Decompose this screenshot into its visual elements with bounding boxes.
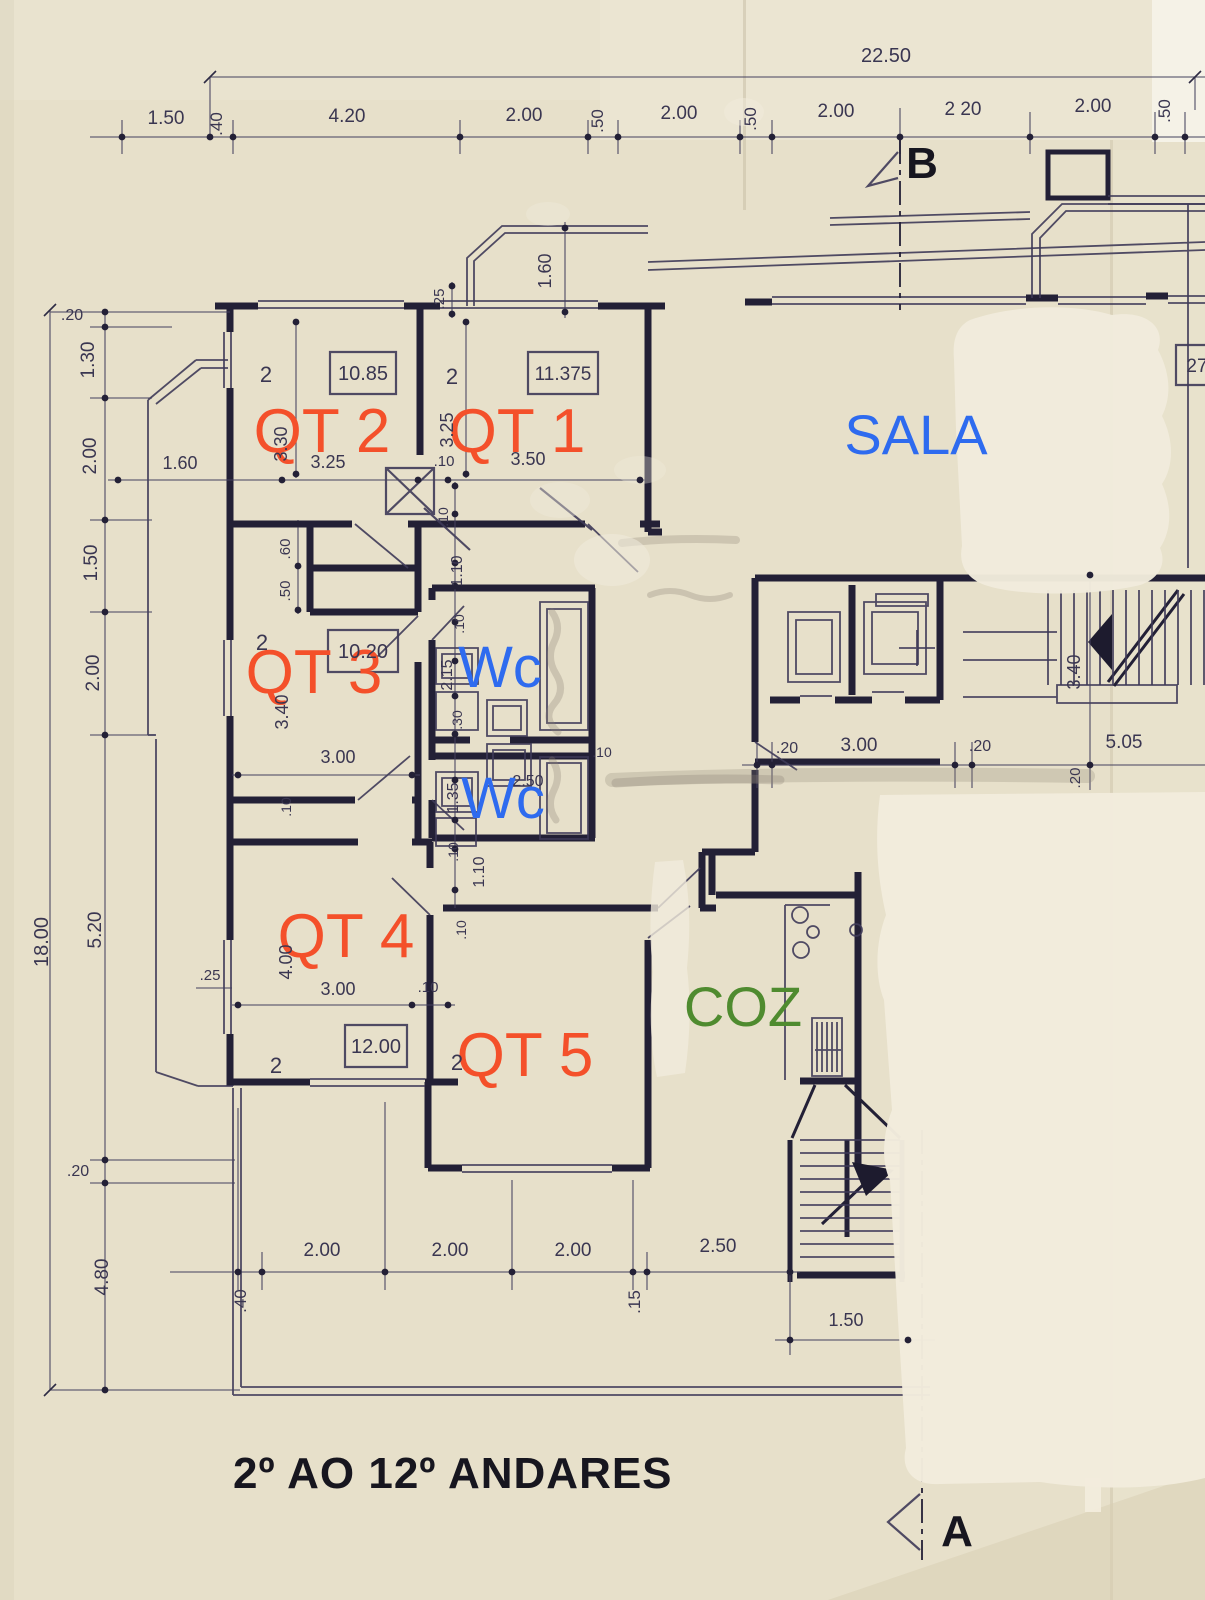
dimension-dot [452,887,459,894]
dimension-label: .50 [588,109,607,133]
dimension-dot [637,477,644,484]
dimension-label: .10 [435,507,451,527]
dimension-label: 1.35 [445,782,462,813]
dimension-dot [452,777,459,784]
dimension-dot [409,772,416,779]
area-value-qt1: 11.375 [535,364,592,385]
dimension-label: 1.10 [449,555,466,586]
dimension-dot [102,309,109,316]
dimension-label: .50 [741,107,760,131]
dimension-dot [102,732,109,739]
dimension-dot [463,319,470,326]
dimension-label: .15 [625,1290,644,1314]
dimension-dot [119,134,126,141]
dimension-dot [463,471,470,478]
dimension-label: 2.00 [555,1240,592,1261]
dimension-dot [1027,134,1034,141]
dimension-label: .40 [207,112,226,136]
room-label-sala: SALA [844,403,988,466]
dimension-dot [1182,134,1189,141]
dimension-label: 2.00 [432,1240,469,1261]
dimension-label: 1.60 [535,253,555,288]
dimension-dot [102,395,109,402]
dimension-dot [445,477,452,484]
dimension-label: 2.50 [700,1236,737,1257]
dimension-label: .50 [1155,99,1174,123]
dimension-label: 3.30 [271,426,291,461]
dimension-label: 3.00 [320,747,355,767]
dimension-label: .25 [431,289,448,310]
dimension-dot [562,309,569,316]
dimension-dot [295,607,302,614]
dimension-dot [102,1157,109,1164]
dimension-label: 1.30 [78,342,99,379]
dimension-label: .10 [434,453,455,470]
dimension-dot [409,1002,416,1009]
dimension-dot [769,134,776,141]
dimension-label: 1.50 [81,545,102,582]
dimension-dot [102,609,109,616]
dimension-label: .20 [61,307,83,324]
dimension-dot [952,762,959,769]
dimension-label: 18.00 [31,917,53,967]
dimension-label: .25 [200,967,221,984]
dimension-dot [754,762,761,769]
dimension-dot [969,762,976,769]
dimension-dot [115,477,122,484]
dimension-label: 2.00 [506,105,543,126]
room-number: 2 [451,1050,463,1075]
dimension-label: 3.00 [841,735,878,756]
dimension-label: 2.00 [83,655,104,692]
dimension-dot [562,225,569,232]
dimension-label: .10 [451,614,467,634]
dimension-dot [585,134,592,141]
dimension-dot [897,134,904,141]
area-value-partial: 27 [1186,356,1205,377]
floor-range-label: 2º AO 12º ANDARES [233,1449,673,1498]
dimension-dot [235,772,242,779]
dimension-dot [1152,134,1159,141]
dimension-dot [769,762,776,769]
dimension-dot [445,1002,452,1009]
section-marker-a: A [941,1507,973,1556]
room-label-qt4: QT 4 [278,902,415,971]
dimension-label: 3.25 [310,452,345,472]
dimension-label: 4.00 [276,944,296,979]
dimension-dot [615,134,622,141]
dimension-dot [102,1180,109,1187]
dimension-dot [295,563,302,570]
dimension-label: .10 [418,979,439,996]
dimension-dot [509,1269,516,1276]
dimension-label: 3.50 [510,449,545,469]
dimension-label: 5.05 [1106,732,1143,753]
dimension-dot [102,517,109,524]
dimension-dot [452,511,459,518]
dimension-dot [235,1269,242,1276]
dimension-label: 2.00 [80,438,101,475]
dimension-label: 22.50 [861,45,911,67]
dimension-label: 4.80 [92,1259,113,1296]
dimension-label: 3.25 [437,412,457,447]
dimension-label: 1.10 [471,856,488,887]
dimension-dot [1087,572,1094,579]
area-value-qt4: 12.00 [351,1036,401,1058]
room-number: 2 [260,362,272,387]
dimension-label: .20 [969,738,991,755]
dimension-label: 2.00 [818,101,855,122]
dimension-dot [235,1002,242,1009]
dimension-dot [259,1269,266,1276]
dimension-dot [452,817,459,824]
dimension-dot [293,471,300,478]
blueprint-photo: QT 2QT 1SALAQT 3WcWcQT 4QT 5COZ2º AO 12º… [0,0,1205,1600]
section-marker-b: B [906,139,938,188]
dimension-dot [905,1337,912,1344]
dimension-label: 3.40 [1064,654,1084,689]
room-number: 2 [270,1053,282,1078]
dimension-label: 3.00 [320,979,355,999]
area-value-qt2: 10.85 [338,363,388,385]
dimension-label: 2.00 [661,103,698,124]
dimension-label: 1.50 [828,1310,863,1330]
dimension-label: 1.50 [148,108,185,129]
floorplan-drawing: QT 2QT 1SALAQT 3WcWcQT 4QT 5COZ2º AO 12º… [0,0,1205,1600]
dimension-dot [279,477,286,484]
dimension-dot [449,283,456,290]
dimension-dot [102,1387,109,1394]
dimension-label: 2 20 [945,99,982,120]
dimension-dot [787,1269,794,1276]
dimension-label: .40 [231,1289,250,1313]
dimension-dot [415,477,422,484]
dimension-dot [787,1337,794,1344]
dimension-label: .60 [277,539,294,560]
room-label-coz: COZ [684,975,802,1038]
dimension-label: 2.00 [1075,96,1112,117]
dimension-label: 2.00 [304,1240,341,1261]
dimension-label: 1.60 [162,453,197,473]
dimension-dot [102,324,109,331]
dimension-dot [452,483,459,490]
dimension-label: .20 [776,740,798,757]
room-number: 2 [256,630,268,655]
dimension-label: 3.40 [272,694,292,729]
dimension-label: 5.20 [85,912,106,949]
dimension-dot [1087,762,1094,769]
dimension-dot [644,1269,651,1276]
dimension-dot [737,134,744,141]
dimension-label: .20 [67,1163,89,1180]
dimension-label: 4.20 [329,106,366,127]
room-label-wc-upper: Wc [458,635,542,700]
room-label-qt5: QT 5 [457,1021,594,1090]
dimension-label: .20 [1067,768,1084,789]
dimension-dot [457,134,464,141]
dimension-dot [452,731,459,738]
dimension-label: .10 [445,842,461,862]
room-number: 2 [446,364,458,389]
dimension-dot [293,319,300,326]
dimension-dot [295,521,302,528]
dimension-label: .50 [277,581,294,602]
dimension-label: 2.50 [512,773,543,790]
area-value-qt3: 10.20 [338,641,388,663]
dimension-dot [230,134,237,141]
dimension-label: .10 [278,797,294,817]
dimension-label: .30 [449,710,465,730]
dimension-label: .10 [592,744,612,760]
dimension-label: 2.15 [439,659,456,690]
dimension-dot [449,311,456,318]
dimension-dot [382,1269,389,1276]
dimension-dot [630,1269,637,1276]
dimension-label: .10 [453,920,469,940]
